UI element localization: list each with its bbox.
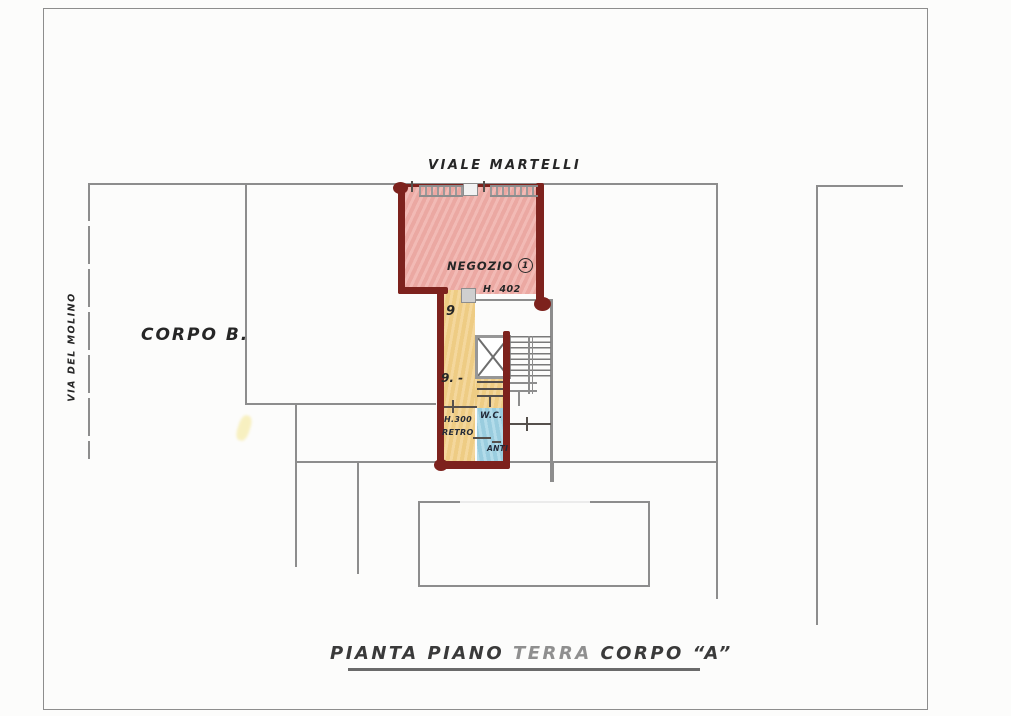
basement-door-line (507, 423, 551, 425)
stair-landing-1 (510, 382, 537, 384)
retro-divider-line (444, 406, 477, 408)
street-left-label: VIA DEL MOLINO (67, 292, 78, 401)
shop-window-2 (490, 185, 538, 197)
entry-step-riser (489, 395, 491, 407)
negozio-label: NEGOZIO (447, 259, 513, 273)
corridor-mark-upper: 9 (446, 304, 455, 319)
shop-right-wall (536, 183, 544, 304)
corridor-mark-lower: 9. - (441, 371, 463, 385)
negozio-height-label: H. 402 (483, 284, 521, 295)
basement-door-tick (526, 417, 528, 431)
street-top-label: VIALE MARTELLI (428, 158, 581, 173)
stair-landing-post (518, 390, 520, 406)
entry-step-1 (477, 381, 503, 383)
corpo-b-label: CORPO B. (141, 325, 249, 345)
plan-title-part2: TERRA (513, 643, 592, 664)
plan-title-part3: CORPO “A” (600, 643, 732, 664)
shop-right-corner-blob (534, 297, 551, 311)
wall-right-block-top (817, 185, 903, 187)
stair-rail-1 (528, 336, 530, 394)
wall-corpob-right (245, 183, 247, 405)
anti-label: ANTI (487, 444, 508, 453)
wall-wing-inner (357, 461, 359, 574)
wc-label: W.C. (480, 411, 503, 421)
shop-left-corner-blob (393, 182, 408, 194)
entry-step-2 (477, 388, 503, 390)
plan-title: PIANTA PIANO TERRA CORPO “A” (330, 643, 715, 664)
floor-plan-page: VIALE MARTELLI VIA DEL MOLINO CORPO B. N… (0, 0, 1011, 716)
wall-mid-horizontal (246, 403, 436, 405)
wall-left-street (88, 183, 90, 459)
courtyard-rect (418, 501, 650, 587)
courtyard-erase-mark (460, 499, 590, 504)
window-tick-1 (411, 181, 413, 192)
stairwell-right-wall (550, 299, 553, 482)
stair-rail-2 (532, 336, 534, 394)
plan-title-part1: PIANTA PIANO (330, 643, 504, 664)
stair-landing-2 (510, 390, 537, 392)
plan-title-underline (348, 668, 700, 671)
stair-treads (510, 336, 551, 381)
wall-bottom-right (509, 461, 717, 463)
wall-wing-left (295, 403, 297, 567)
retro-label: RETRO (442, 428, 474, 437)
shop-window-1 (419, 185, 463, 197)
retro-divider-tick (452, 400, 454, 413)
unit-bottom-wall (437, 461, 510, 469)
wc-divider-line (473, 437, 491, 439)
shaft-corner-block (461, 288, 476, 303)
window-tick-2 (483, 181, 485, 192)
negozio-unit-badge: 1 (518, 258, 533, 273)
wall-right-block-left (816, 185, 818, 625)
wc-divider-tick (492, 441, 501, 443)
negozio-label-row: NEGOZIO 1 (447, 258, 533, 273)
shop-left-wall (398, 183, 405, 294)
shop-area (402, 186, 540, 294)
shop-door-box (463, 183, 478, 196)
wall-right-main (716, 183, 718, 599)
retro-height-label: H.300 (444, 415, 472, 424)
wall-bottom-left (296, 461, 442, 463)
